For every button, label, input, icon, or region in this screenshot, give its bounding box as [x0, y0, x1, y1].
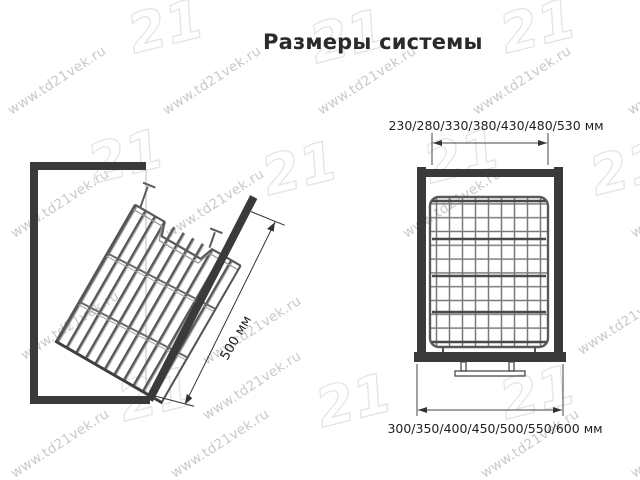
- wire-basket-side: [53, 181, 254, 403]
- arrow-left: [418, 407, 427, 413]
- arrow-right: [553, 407, 562, 413]
- arrow-left: [433, 140, 442, 146]
- bottom-width-dimension: [417, 364, 563, 416]
- top-width-dimension: [432, 133, 548, 165]
- frame-left-bar: [30, 162, 38, 404]
- frame-bottom-bar: [414, 352, 566, 362]
- top-width-dimension-label: 230/280/330/380/430/480/530 мм: [388, 118, 603, 133]
- foot-post-left: [461, 362, 466, 371]
- foot-post-right: [509, 362, 514, 371]
- frame-top-bar: [30, 162, 146, 170]
- side-view-diagram: 500 мм: [30, 146, 308, 426]
- front-view-diagram: 230/280/330/380/430/480/530 мм 300/350/4…: [387, 118, 603, 436]
- dimensions-diagram-page: www.td21vek.ruwww.td21vek.ruwww.td21vek.…: [0, 0, 640, 480]
- dimension-extension-top: [251, 207, 285, 229]
- basket-outline: [430, 197, 548, 347]
- depth-dimension-label: 500 мм: [218, 313, 255, 363]
- frame-top-bar: [426, 169, 554, 177]
- frame-left-bar: [417, 167, 426, 352]
- frame-right-bar: [554, 167, 563, 352]
- mounting-foot: [455, 362, 525, 376]
- wire-basket-front: [430, 197, 548, 352]
- diagrams-canvas: 500 мм: [0, 0, 640, 480]
- arrow-right: [538, 140, 547, 146]
- foot-plate: [455, 371, 525, 376]
- frame-bottom-bar: [30, 396, 150, 404]
- bottom-width-dimension-label: 300/350/400/450/500/550/600 мм: [387, 421, 602, 436]
- tilted-assembly: 500 мм: [51, 146, 309, 426]
- page-title: Размеры системы: [263, 30, 483, 54]
